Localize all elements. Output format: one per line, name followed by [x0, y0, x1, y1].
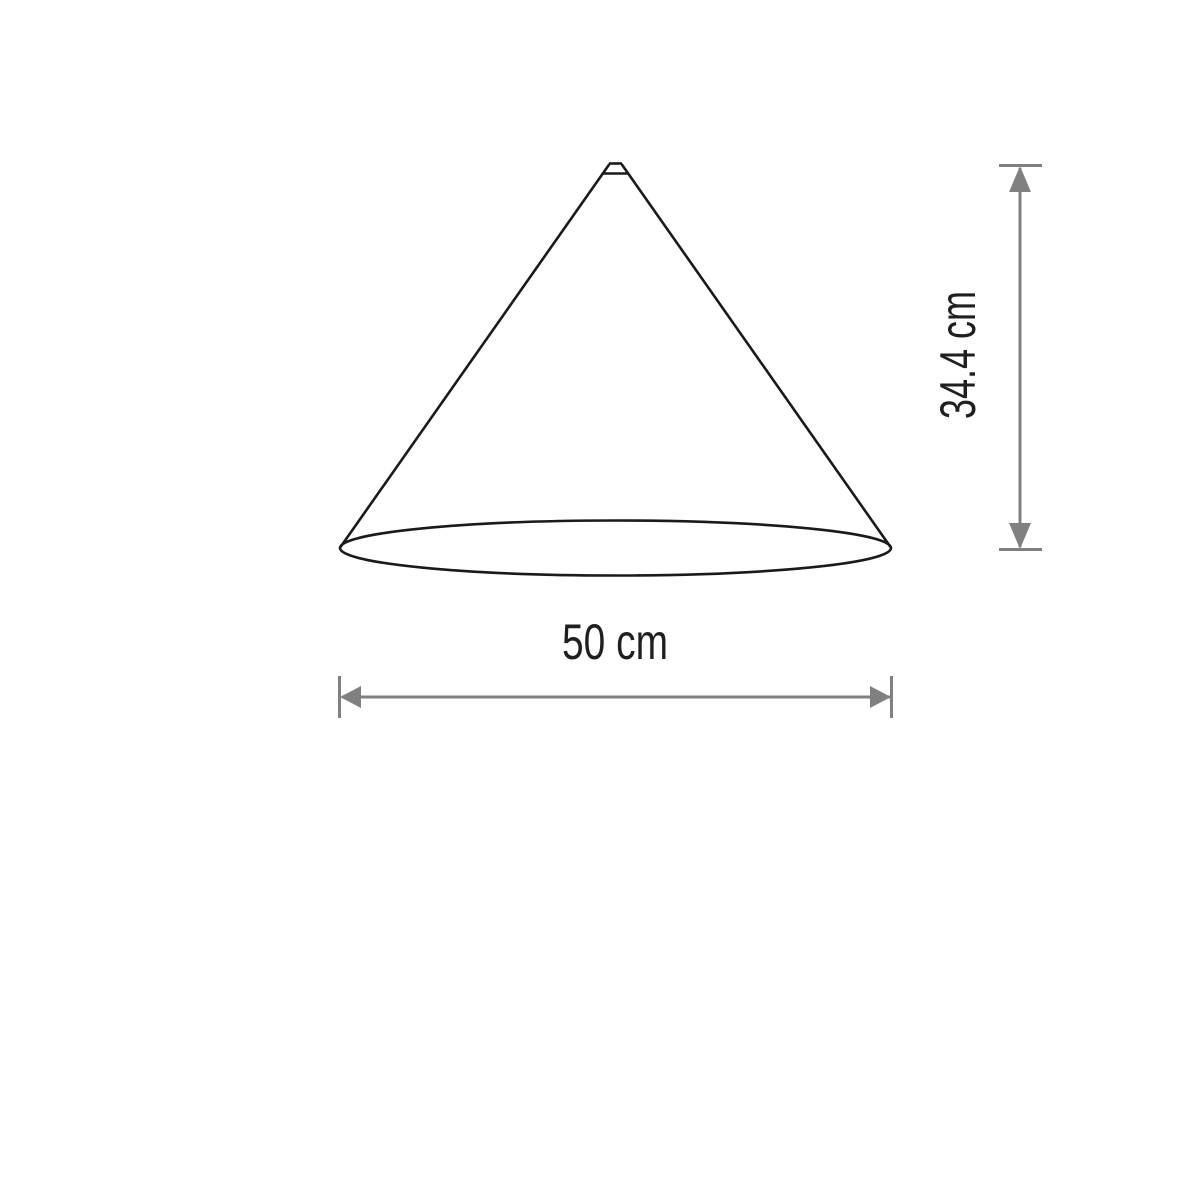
cone-base-ellipse: [340, 521, 891, 576]
cone-right-edge: [622, 164, 891, 547]
cone-outline: [340, 164, 891, 576]
height-dimension: 34.4 cm: [930, 166, 1042, 550]
cone-left-edge: [341, 164, 610, 547]
width-dimension: 50 cm: [340, 614, 892, 718]
dimension-drawing-canvas: 34.4 cm 50 cm: [0, 0, 1200, 1200]
width-dimension-label: 50 cm: [562, 614, 668, 670]
width-dimension-arrow-right-icon: [870, 686, 891, 708]
height-dimension-arrow-down-icon: [1009, 523, 1031, 549]
cone-dimension-diagram: 34.4 cm 50 cm: [0, 0, 1200, 1200]
height-dimension-arrow-up-icon: [1009, 166, 1031, 192]
width-dimension-arrow-left-icon: [340, 686, 361, 708]
height-dimension-label: 34.4 cm: [930, 291, 986, 419]
